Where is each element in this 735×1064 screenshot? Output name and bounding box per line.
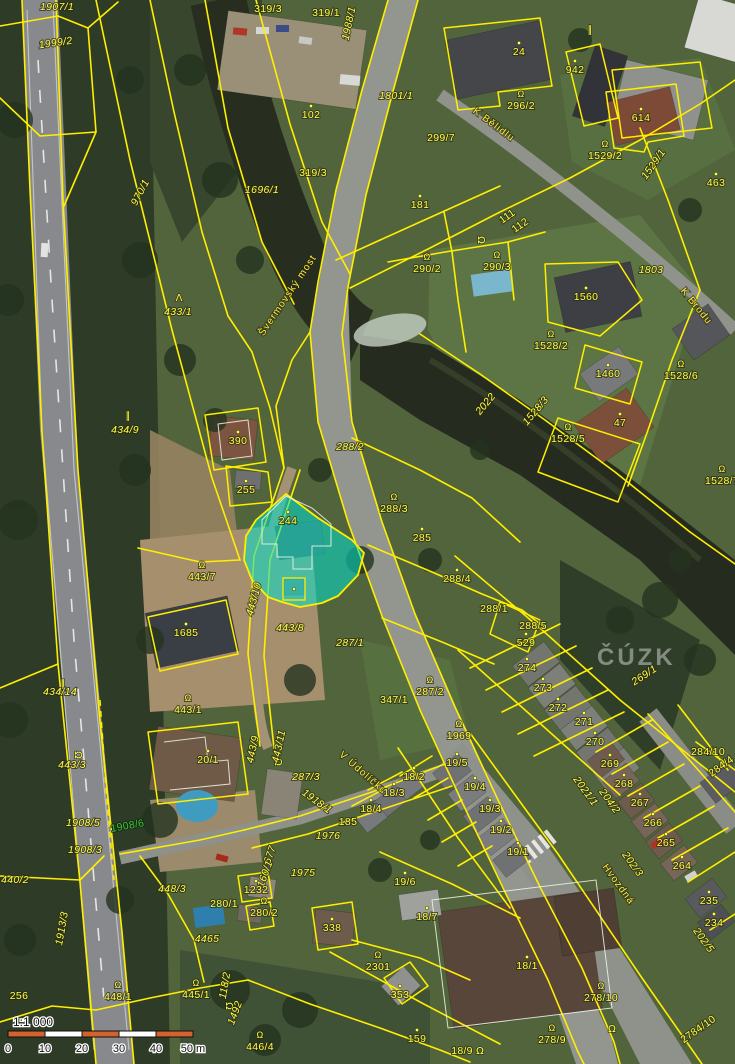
parcel-dot-symbol xyxy=(680,855,683,858)
parcel-number-label: 443/3 xyxy=(58,759,86,771)
parcel-number-label: 19/1 xyxy=(507,846,529,858)
parcel-number-label: 24 xyxy=(513,46,525,58)
parcel-dot-symbol xyxy=(425,906,428,909)
parcel-number-label: 463 xyxy=(707,177,725,189)
hook-symbol: Ω xyxy=(601,139,608,149)
parcel-number-label: 1528/7 xyxy=(705,475,735,487)
parcel-number-label: 235 xyxy=(700,895,718,907)
parcel-dot-symbol xyxy=(618,412,621,415)
parcel-number-label: 299/7 xyxy=(427,132,455,144)
parcel-number-label: 1907/1 xyxy=(40,1,74,13)
parcel-number-label: 319/3 xyxy=(299,167,327,179)
parcel-dot-symbol xyxy=(254,879,257,882)
parcel-dot-symbol xyxy=(398,984,401,987)
parcel-number-label: 269 xyxy=(601,758,619,770)
parcel-dot-symbol xyxy=(516,841,519,844)
parcel-number-label: 446/4 xyxy=(246,1041,274,1053)
parcel-number-label: 47 xyxy=(614,417,626,429)
hook-symbol: Ω xyxy=(390,492,397,502)
parcel-dot-symbol xyxy=(638,792,641,795)
parcel-number-label: 390 xyxy=(229,435,247,447)
parcel-number-label: 274 xyxy=(518,662,536,674)
scale-tick-label: 30 xyxy=(113,1043,125,1055)
parcel-dot-symbol xyxy=(309,104,312,107)
parcel-dot-symbol xyxy=(236,430,239,433)
scale-bar-segment xyxy=(119,1031,156,1037)
scale-ratio-label: 1:1 000 xyxy=(13,1015,53,1029)
parcel-number-label: 4465 xyxy=(195,933,220,945)
map-canvas[interactable]: Λ∥∥∥ΩΩΩΩΩΩ 1907/11999/2319/3319/11988/12… xyxy=(0,0,735,1064)
parcel-number-label: 287/3 xyxy=(291,771,320,783)
scale-tick-label: 40 xyxy=(150,1043,162,1055)
parcel-number-label: 288/3 xyxy=(380,503,408,515)
parcel-number-label: 234 xyxy=(705,917,723,929)
scale-bar-segment xyxy=(45,1031,82,1037)
parcel-dot-symbol xyxy=(286,510,289,513)
parcel-number-label: 244 xyxy=(279,515,297,527)
parcel-number-label: 280/2 xyxy=(250,907,278,919)
parcel-dot-symbol xyxy=(714,172,717,175)
parcel-dot-symbol xyxy=(525,955,528,958)
parcel-dot-symbol xyxy=(369,798,372,801)
parcel-number-label: 273 xyxy=(534,682,552,694)
parcel-dot-symbol xyxy=(712,912,715,915)
parcel-dot-symbol xyxy=(455,568,458,571)
parcel-number-label: 278/9 xyxy=(538,1034,566,1046)
parcel-number-label: 265 xyxy=(657,837,675,849)
scale-tick-label: 10 xyxy=(39,1043,51,1055)
parcel-dot-symbol xyxy=(330,917,333,920)
parcel-number-label: 448/3 xyxy=(158,883,186,895)
parcel-dot-symbol xyxy=(418,194,421,197)
parcel-number-label: 1976 xyxy=(316,830,341,842)
parcel-number-label: 443/8 xyxy=(276,622,304,634)
cuzk-watermark: ČÚZK xyxy=(597,643,676,671)
parcel-dot-symbol xyxy=(412,766,415,769)
parcel-number-label: 18/2 xyxy=(403,771,425,783)
hook-symbol: Ω xyxy=(260,896,267,906)
parcel-number-label: 284/10 xyxy=(691,746,725,758)
parcel-dot-symbol xyxy=(541,677,544,680)
pool xyxy=(176,790,218,822)
parcel-number-label: 614 xyxy=(632,112,650,124)
parcel-dot-symbol xyxy=(499,819,502,822)
parcel-number-label: 18/3 xyxy=(383,787,405,799)
parcel-number-label: 18/9 xyxy=(451,1045,473,1057)
hook-symbol: Ω xyxy=(718,464,725,474)
scale-bar-segment xyxy=(82,1031,119,1037)
parcel-number-label: 288/2 xyxy=(335,441,364,453)
aerial-orthophoto xyxy=(0,0,735,1064)
parcel-number-label: 287/1 xyxy=(335,637,364,649)
parcel-dot-symbol xyxy=(651,812,654,815)
parcel-dot-symbol xyxy=(524,632,527,635)
parcel-number-label: 296/2 xyxy=(507,100,535,112)
hook-symbol: Ω xyxy=(548,1023,555,1033)
parcel-dot-symbol xyxy=(473,776,476,779)
parcel-dot-symbol xyxy=(608,753,611,756)
parcel-number-label: 434/14 xyxy=(43,686,77,698)
parcel-number-label: 440/2 xyxy=(1,874,29,886)
parcel-number-label: 181 xyxy=(411,199,429,211)
parcel-number-label: 1529/2 xyxy=(588,150,622,162)
hook-symbol: Ω xyxy=(564,422,571,432)
hook-symbol: Ω xyxy=(72,751,83,759)
parcel-number-label: 1685 xyxy=(174,627,199,639)
parcel-number-label: 1908/3 xyxy=(68,844,102,856)
hook-symbol: Ω xyxy=(192,978,199,988)
parcel-number-label: 1528/5 xyxy=(551,433,585,445)
hook-symbol: Ω xyxy=(493,250,500,260)
parcel-dot-symbol xyxy=(244,479,247,482)
dash-symbol: ∥ xyxy=(126,411,131,422)
parcel-dot-symbol xyxy=(606,363,609,366)
parcel-dot-symbol xyxy=(584,286,587,289)
parcel-number-label: 288/1 xyxy=(480,603,508,615)
parcel-dot-symbol xyxy=(403,871,406,874)
parcel-number-label: 185 xyxy=(339,816,357,828)
dash-symbol: ∥ xyxy=(588,25,593,36)
parcel-dot-symbol xyxy=(455,752,458,755)
scale-tick-label: 50 m xyxy=(181,1043,205,1055)
parcel-dot-symbol xyxy=(206,749,209,752)
parcel-number-label: 443/1 xyxy=(174,704,202,716)
parcel-number-label: 1528/6 xyxy=(664,370,698,382)
parcel-dot-symbol xyxy=(582,711,585,714)
parcel-number-label: 443/7 xyxy=(188,571,216,583)
cadastral-map-view[interactable]: Λ∥∥∥ΩΩΩΩΩΩ 1907/11999/2319/3319/11988/12… xyxy=(0,0,735,1064)
parcel-number-label: 434/9 xyxy=(111,424,139,436)
parcel-dot-symbol xyxy=(184,622,187,625)
hook-symbol: Ω xyxy=(476,1046,484,1057)
parcel-number-label: 18/7 xyxy=(416,911,438,923)
parcel-number-label: 448/1 xyxy=(104,991,132,1003)
hook-symbol: Ω xyxy=(374,950,381,960)
parcel-number-label: 159 xyxy=(408,1033,426,1045)
parcel-number-label: 1696/1 xyxy=(245,184,279,196)
scale-tick-label: 20 xyxy=(76,1043,88,1055)
parcel-dot-symbol xyxy=(525,657,528,660)
parcel-number-label: 347/1 xyxy=(380,694,408,706)
parcel-dot-symbol xyxy=(488,798,491,801)
parcel-number-label: 270 xyxy=(586,736,604,748)
parcel-number-label: 1975 xyxy=(291,867,316,879)
hook-symbol: Ω xyxy=(597,981,604,991)
hook-symbol: Ω xyxy=(517,89,524,99)
parcel-number-label: 278/10 xyxy=(584,992,618,1004)
scale-bar-segments xyxy=(8,1031,193,1037)
hook-symbol: Ω xyxy=(608,1024,616,1035)
parcel-number-label: 1801/1 xyxy=(379,90,413,102)
parcel-number-label: 1232 xyxy=(244,884,269,896)
parcel-number-label: 267 xyxy=(631,797,649,809)
parcel-dot-symbol xyxy=(639,107,642,110)
parcel-dot-symbol xyxy=(415,1028,418,1031)
parcel-number-label: 20/1 xyxy=(197,754,219,766)
parcel-dot-symbol xyxy=(392,782,395,785)
parcel-number-label: 529 xyxy=(517,637,535,649)
hook-symbol: Ω xyxy=(547,329,554,339)
parcel-number-label: 353 xyxy=(391,989,409,1001)
parcel-number-label: 18/4 xyxy=(360,803,382,815)
parcel-dot-symbol xyxy=(573,59,576,62)
parcel-number-label: 1969 xyxy=(447,730,472,742)
parcel-number-label: 287/2 xyxy=(416,686,444,698)
parcel-number-label: 288/4 xyxy=(443,573,471,585)
parcel-number-label: 19/3 xyxy=(479,803,501,815)
parcel-number-label: 19/6 xyxy=(394,876,416,888)
parcel-number-label: 1908/5 xyxy=(66,817,100,829)
hook-symbol: Ω xyxy=(426,675,433,685)
parcel-number-label: 445/1 xyxy=(182,989,210,1001)
parcel-number-label: 288/5 xyxy=(519,620,547,632)
scale-bar-segment xyxy=(156,1031,193,1037)
parcel-dot-symbol xyxy=(707,890,710,893)
parcel-number-label: 1528/2 xyxy=(534,340,568,352)
parcel-number-label: 285 xyxy=(413,532,431,544)
hook-symbol: Ω xyxy=(184,693,191,703)
scale-bar-segment xyxy=(8,1031,45,1037)
parcel-number-label: 266 xyxy=(644,817,662,829)
parcel-number-label: 255 xyxy=(237,484,255,496)
parcel-dot-symbol xyxy=(517,41,520,44)
parcel-number-label: 18/1 xyxy=(516,960,538,972)
hook-symbol: Ω xyxy=(114,980,121,990)
parcel-number-label: 290/2 xyxy=(413,263,441,275)
parcel-number-label: 1803 xyxy=(639,264,664,276)
parcel-dot-symbol xyxy=(556,697,559,700)
parcel-number-label: 272 xyxy=(549,702,567,714)
parcel-number-label: 319/3 xyxy=(254,3,282,15)
parcel-number-label: 256 xyxy=(10,990,28,1002)
parcel-number-label: 319/1 xyxy=(312,7,340,19)
parcel-dot-symbol xyxy=(292,587,295,590)
hook-symbol: Ω xyxy=(677,359,684,369)
hook-symbol: Ω xyxy=(423,252,430,262)
hook-symbol: Ω xyxy=(256,1030,263,1040)
parcel-number-label: 290/3 xyxy=(483,261,511,273)
parcel-number-label: 1460 xyxy=(596,368,621,380)
parcel-dot-symbol xyxy=(420,527,423,530)
parcel-dot-symbol xyxy=(664,832,667,835)
parcel-number-label: 942 xyxy=(566,64,584,76)
hook-symbol: Ω xyxy=(455,719,462,729)
parcel-number-label: 338 xyxy=(323,922,341,934)
parcel-number-label: 271 xyxy=(575,716,593,728)
tree-symbol: Λ xyxy=(176,293,183,304)
parcel-number-label: 19/2 xyxy=(490,824,512,836)
parcel-number-label: 280/1 xyxy=(210,898,238,910)
parcel-dot-symbol xyxy=(622,773,625,776)
parcel-number-label: 1560 xyxy=(574,291,599,303)
parcel-number-label: 19/4 xyxy=(464,781,486,793)
parcel-number-label: 2301 xyxy=(366,961,391,973)
parcel-dot-symbol xyxy=(593,731,596,734)
scale-tick-label: 0 xyxy=(5,1043,11,1055)
parcel-number-label: 102 xyxy=(302,109,320,121)
parcel-number-label: 19/5 xyxy=(446,757,468,769)
parcel-number-label: 433/1 xyxy=(164,306,192,318)
parcel-number-label: 264 xyxy=(673,860,691,872)
hook-symbol: Ω xyxy=(198,560,205,570)
hook-symbol: Ω xyxy=(475,236,486,244)
parcel-number-label: 268 xyxy=(615,778,633,790)
